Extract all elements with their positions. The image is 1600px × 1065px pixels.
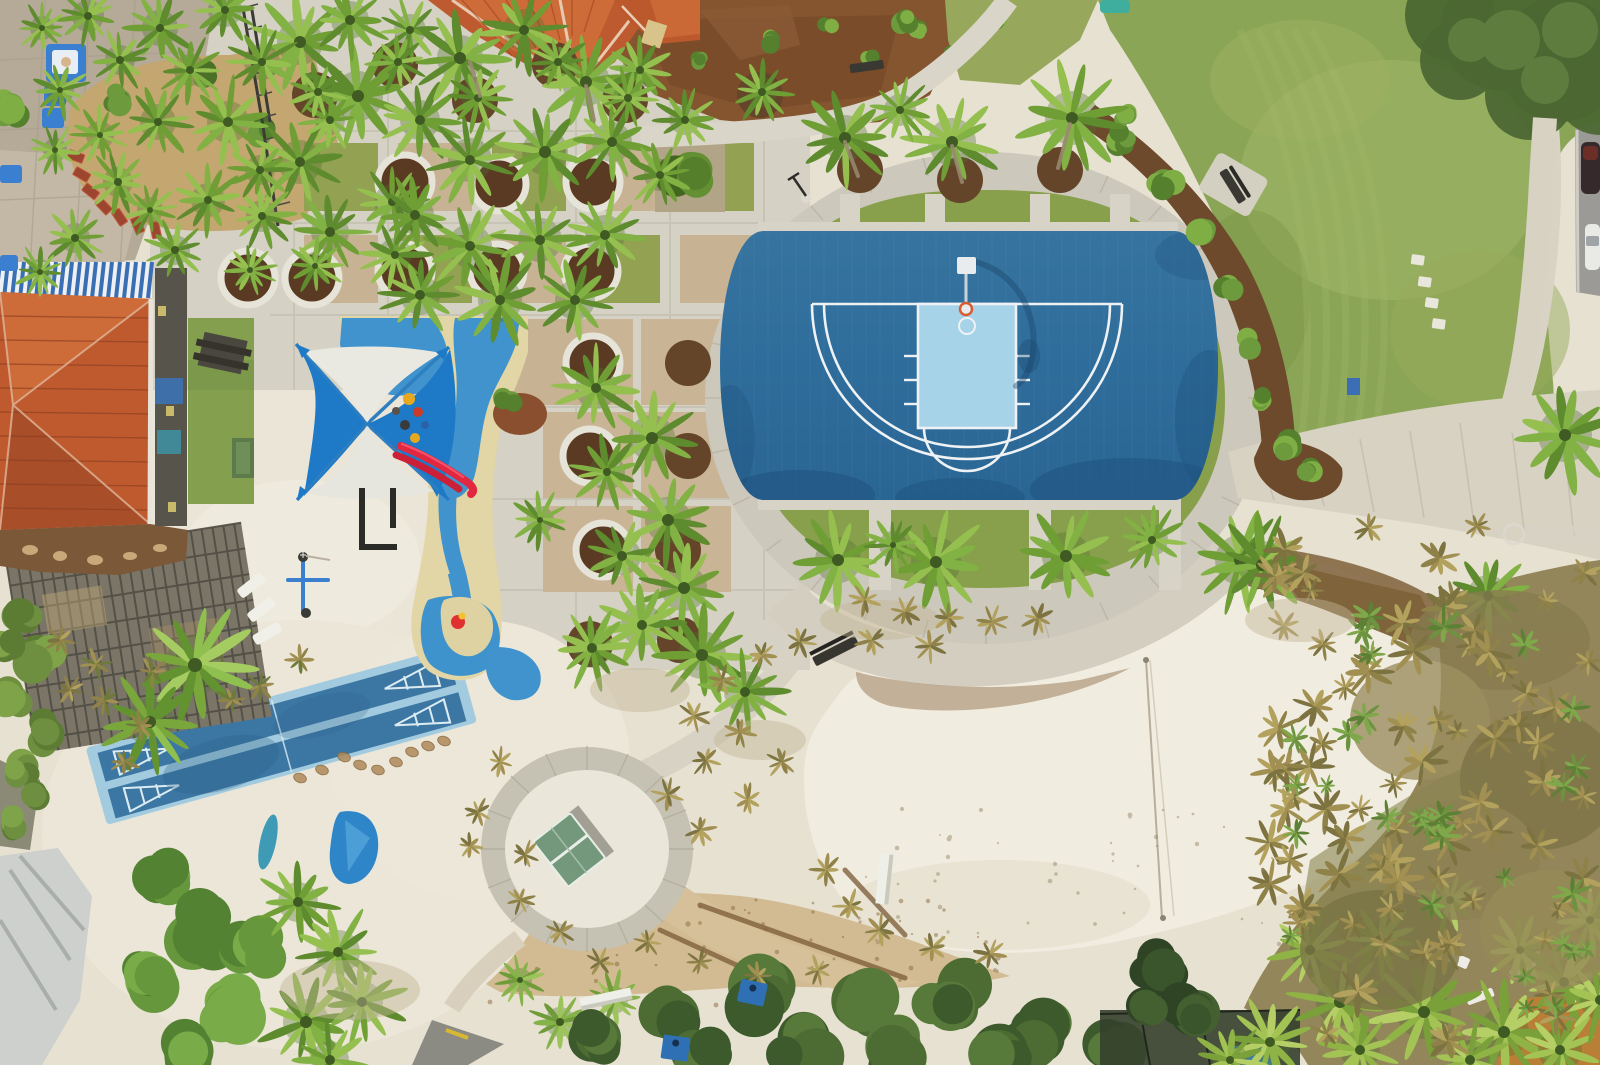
svg-text:StellarMLS: StellarMLS	[1527, 521, 1600, 549]
